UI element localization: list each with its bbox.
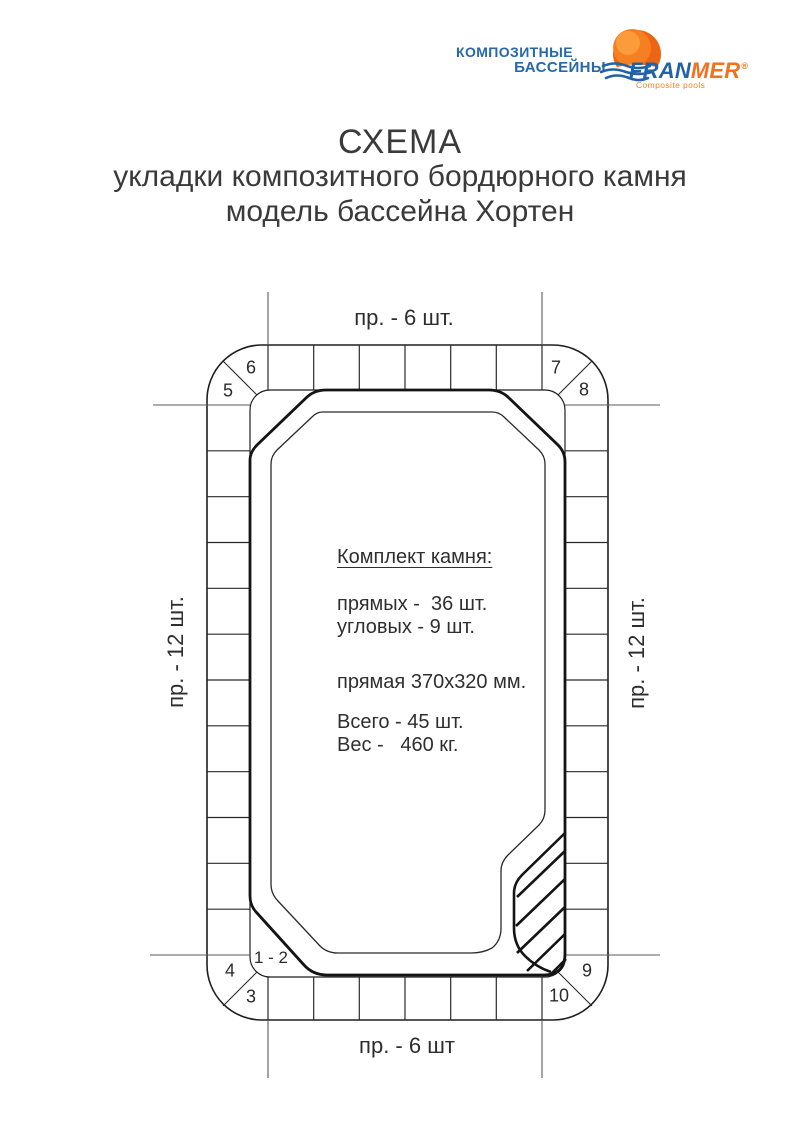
corner-stone-number-4: 4 bbox=[225, 961, 235, 982]
top-band-joints bbox=[268, 345, 542, 390]
kit-stone-size: прямая 370х320 мм. bbox=[337, 671, 526, 694]
page: КОМПОЗИТНЫЕ БАССЕЙНЫ FRANMER® Composite … bbox=[0, 0, 800, 1131]
kit-total-weight: Вес - 460 кг. bbox=[337, 734, 458, 757]
corner-stone-number-6: 6 bbox=[246, 358, 256, 379]
bottom-band-joints bbox=[268, 977, 542, 1020]
left-straight-count-label: пр. - 12 шт. bbox=[163, 596, 189, 708]
right-straight-count-label: пр. - 12 шт. bbox=[624, 597, 650, 709]
corner-stone-number-3: 3 bbox=[246, 987, 256, 1008]
corner-stone-number-5: 5 bbox=[223, 381, 233, 402]
right-band-joints bbox=[565, 451, 608, 909]
corner-stone-number-8: 8 bbox=[579, 380, 589, 401]
corner-stone-number-10: 10 bbox=[549, 986, 569, 1007]
top-straight-count-label: пр. - 6 шт. bbox=[354, 305, 454, 331]
left-band-joints bbox=[207, 451, 250, 909]
corner-stone-number-7: 7 bbox=[551, 358, 561, 379]
corner-stone-number-1-2: 1 - 2 bbox=[254, 948, 288, 968]
kit-corner-count: угловых - 9 шт. bbox=[337, 616, 475, 639]
kit-straight-count: прямых - 36 шт. bbox=[337, 593, 487, 616]
bottom-straight-count-label: пр. - 6 шт bbox=[359, 1033, 455, 1059]
kit-heading: Комплект камня: bbox=[337, 546, 492, 569]
corner-stone-number-9: 9 bbox=[582, 961, 592, 982]
kit-total-count: Всего - 45 шт. bbox=[337, 711, 464, 734]
